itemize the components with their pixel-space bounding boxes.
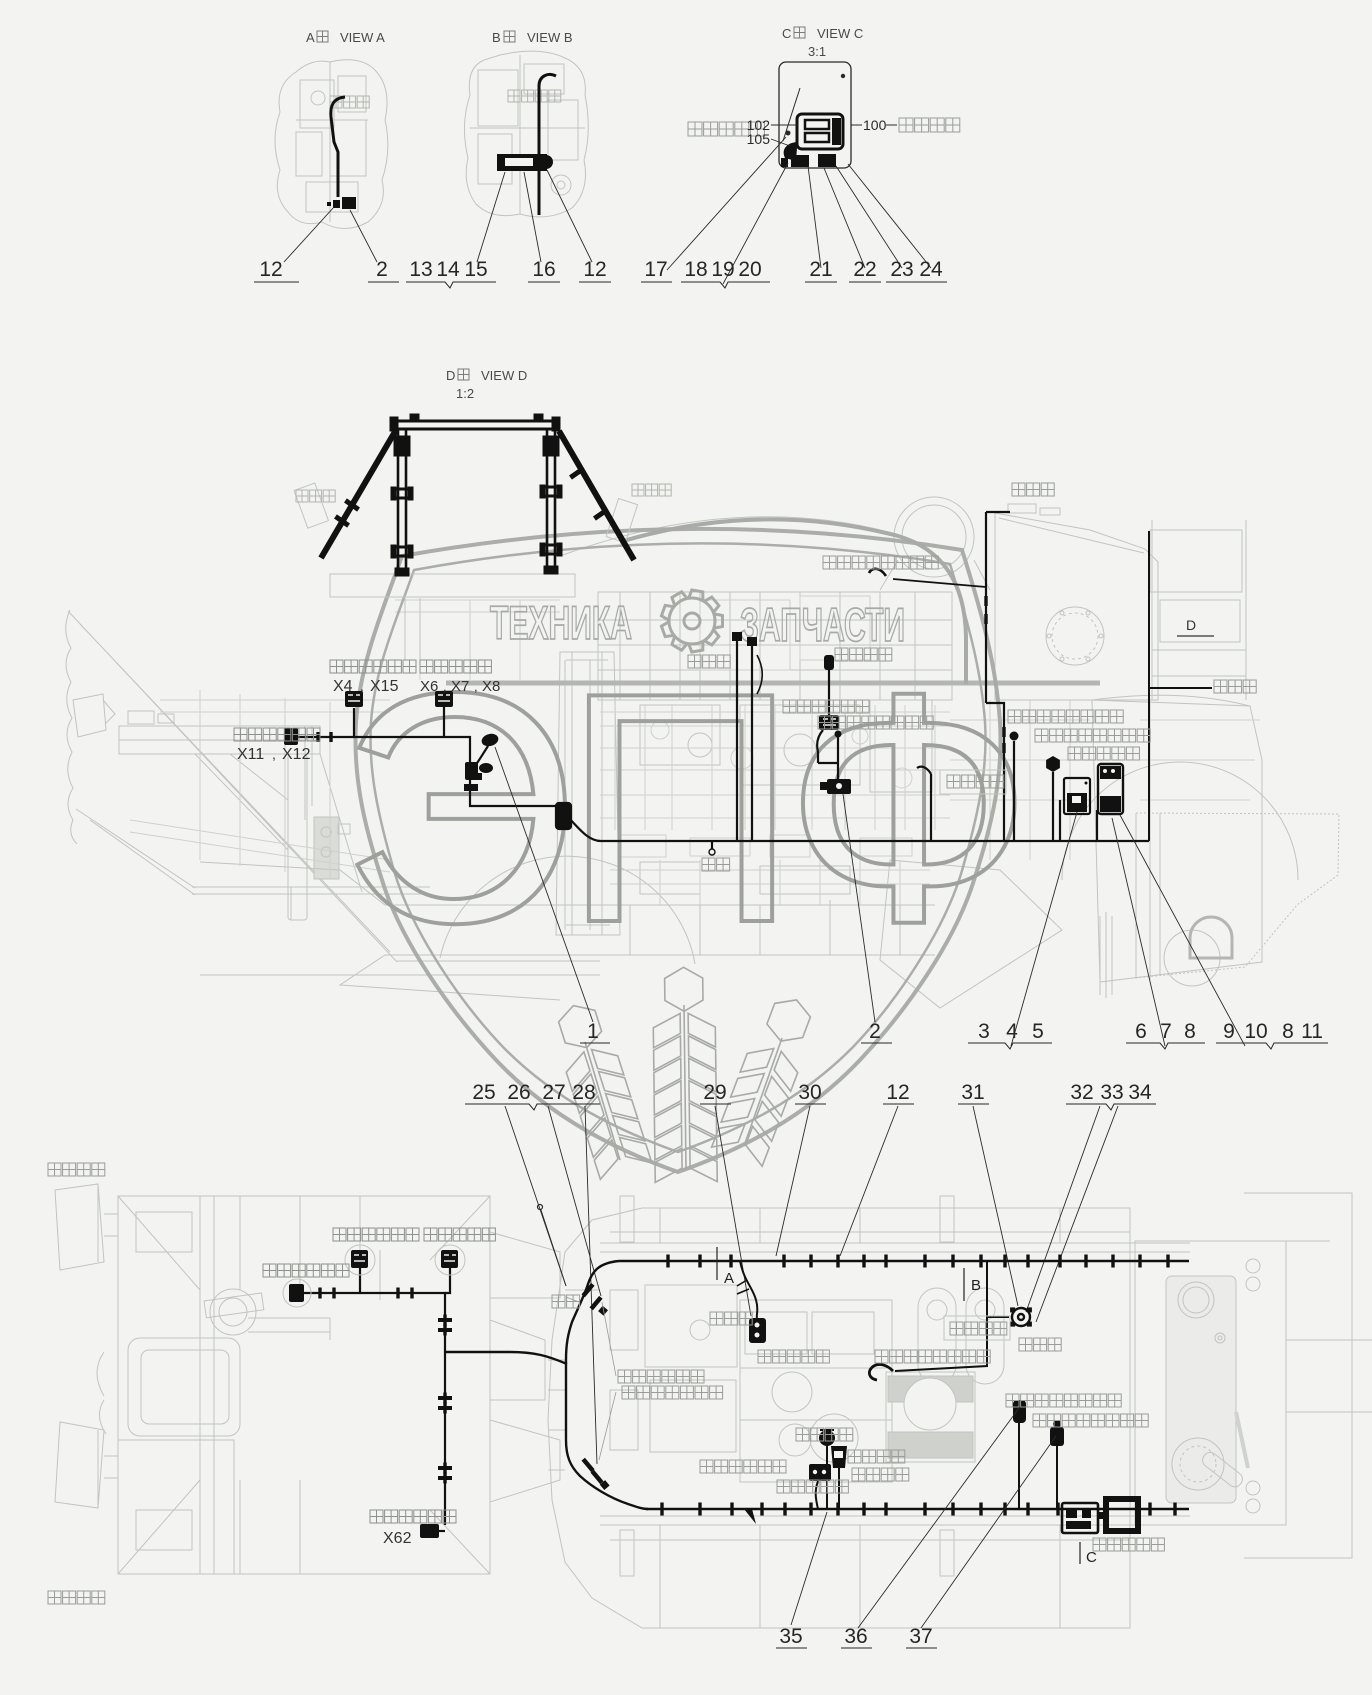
svg-text:37: 37 [909,1625,932,1648]
svg-text:X7: X7 [451,678,469,695]
svg-text:X11: X11 [237,746,264,763]
svg-text:1: 1 [587,1020,599,1043]
svg-text:36: 36 [844,1625,867,1648]
svg-text:3: 3 [978,1020,990,1043]
svg-text:D: D [446,368,455,383]
svg-text:A: A [306,30,315,45]
svg-text:11: 11 [1301,1020,1323,1043]
svg-text:12: 12 [259,258,282,281]
svg-text:7: 7 [1160,1020,1172,1043]
svg-text:VIEW A: VIEW A [340,30,385,45]
svg-text:24: 24 [919,258,943,281]
svg-text:30: 30 [798,1081,821,1104]
svg-text:26: 26 [507,1081,530,1104]
svg-text:28: 28 [572,1081,595,1104]
svg-text:,: , [360,678,364,694]
svg-text:1:2: 1:2 [456,386,474,401]
svg-text:VIEW B: VIEW B [527,30,573,45]
svg-text:8: 8 [1282,1020,1294,1043]
svg-text:VIEW D: VIEW D [481,368,527,383]
svg-text:,: , [272,746,276,762]
svg-text:C: C [782,26,791,41]
svg-text:4: 4 [1006,1020,1018,1043]
svg-text:A: A [724,1270,734,1287]
svg-text:12: 12 [583,258,606,281]
svg-text:9: 9 [1223,1020,1235,1043]
svg-text:6: 6 [1135,1020,1147,1043]
svg-text:14: 14 [436,258,460,281]
svg-text:15: 15 [464,258,487,281]
svg-text:B: B [492,30,501,45]
svg-text:19: 19 [711,258,734,281]
svg-text:105: 105 [747,131,771,147]
svg-text:,: , [443,679,447,694]
svg-text:2: 2 [869,1020,881,1043]
svg-text:16: 16 [532,258,555,281]
svg-text:X62: X62 [383,1530,412,1547]
svg-text:2: 2 [376,258,388,281]
svg-text:ЗАПЧАСТИ: ЗАПЧАСТИ [740,598,905,651]
svg-text:100: 100 [863,117,887,133]
svg-text:,: , [474,679,478,694]
svg-text:VIEW C: VIEW C [817,26,863,41]
svg-text:X6: X6 [420,678,438,695]
svg-text:ТЕХНИКА: ТЕХНИКА [490,596,632,649]
svg-text:10: 10 [1244,1020,1267,1043]
svg-text:21: 21 [809,258,832,281]
svg-text:25: 25 [472,1081,495,1104]
svg-text:27: 27 [542,1081,565,1104]
svg-text:29: 29 [703,1081,726,1104]
svg-text:B: B [971,1277,981,1294]
svg-text:D: D [1186,617,1196,633]
svg-text:5: 5 [1032,1020,1044,1043]
svg-text:32: 32 [1070,1081,1093,1104]
svg-text:34: 34 [1128,1081,1152,1104]
svg-text:X12: X12 [282,746,311,763]
svg-text:35: 35 [779,1625,802,1648]
svg-text:C: C [1086,1549,1097,1566]
svg-text:8: 8 [1184,1020,1196,1043]
svg-text:X4: X4 [333,678,353,695]
svg-text:X15: X15 [370,678,399,695]
svg-text:17: 17 [644,258,667,281]
svg-text:12: 12 [886,1081,909,1104]
svg-text:3:1: 3:1 [808,44,826,59]
svg-text:20: 20 [738,258,761,281]
svg-text:33: 33 [1100,1081,1123,1104]
svg-text:18: 18 [684,258,707,281]
svg-text:13: 13 [409,258,432,281]
svg-text:31: 31 [961,1081,984,1104]
svg-text:X8: X8 [482,678,500,695]
svg-text:23: 23 [890,258,913,281]
svg-text:22: 22 [853,258,876,281]
